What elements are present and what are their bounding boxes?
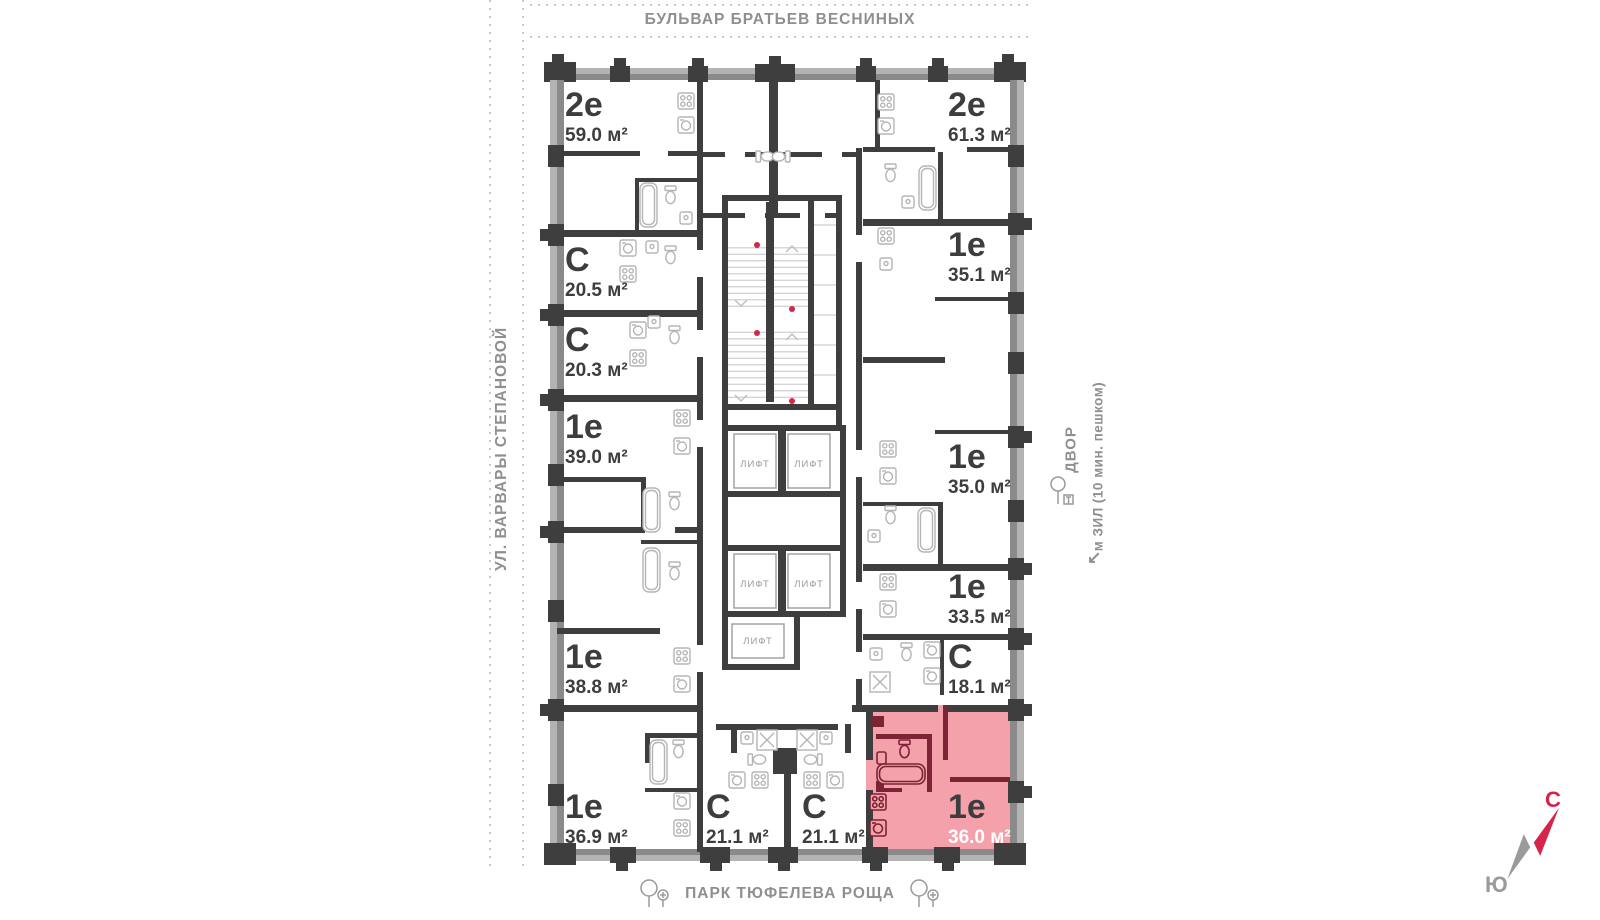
apartment-type: С	[565, 323, 628, 357]
apartment-1e-390[interactable]: 1е 39.0 м²	[565, 410, 628, 467]
apartment-area: 21.1 м²	[706, 828, 769, 847]
apartment-type: 1е	[948, 228, 1011, 262]
elevator-label: ЛИФТ	[734, 459, 776, 470]
apartment-area: 33.5 м²	[948, 608, 1011, 627]
apartment-1e-351[interactable]: 1е 35.1 м²	[948, 228, 1011, 285]
apartment-s-203[interactable]: С 20.3 м²	[565, 323, 628, 380]
apartment-area: 18.1 м²	[948, 678, 1011, 697]
apartment-1e-350[interactable]: 1е 35.0 м²	[948, 440, 1011, 497]
apartment-area: 20.3 м²	[565, 361, 628, 380]
apartment-type: 2е	[565, 88, 628, 122]
apartment-2e-59[interactable]: 2е 59.0 м²	[565, 88, 628, 145]
apartment-area: 59.0 м²	[565, 126, 628, 145]
apartment-s-211-right[interactable]: С 21.1 м²	[802, 790, 865, 847]
apartment-area: 61.3 м²	[948, 126, 1011, 145]
apartment-area: 35.0 м²	[948, 478, 1011, 497]
apartment-area: 35.1 м²	[948, 266, 1011, 285]
elevator-label: ЛИФТ	[788, 459, 830, 470]
floorplan-page: БУЛЬВАР БРАТЬЕВ ВЕСНИНЫХ УЛ. ВАРВАРЫ СТЕ…	[0, 0, 1600, 920]
apartment-type: 1е	[948, 440, 1011, 474]
apartment-area: 20.5 м²	[565, 281, 628, 300]
apartment-type: С	[948, 640, 1011, 674]
apartment-area: 36.9 м²	[565, 828, 628, 847]
apartment-type: 1е	[948, 570, 1011, 604]
apartment-area: 39.0 м²	[565, 448, 628, 467]
elevator-label: ЛИФТ	[788, 579, 830, 590]
apartment-s-181[interactable]: С 18.1 м²	[948, 640, 1011, 697]
elevator-label: ЛИФТ	[732, 636, 784, 647]
apartment-type: 1е	[565, 790, 628, 824]
apartment-area: 21.1 м²	[802, 828, 865, 847]
apartment-type: С	[565, 243, 628, 277]
apartment-type: 1е	[565, 640, 628, 674]
stairwell	[728, 202, 836, 404]
apartment-s-211-left[interactable]: С 21.1 м²	[706, 790, 769, 847]
apartment-1e-369[interactable]: 1е 36.9 м²	[565, 790, 628, 847]
apartment-1e-360-highlighted[interactable]: 1е 36.0 м²	[948, 790, 1011, 847]
apartment-type: С	[802, 790, 865, 824]
apartment-s-205[interactable]: С 20.5 м²	[565, 243, 628, 300]
apartment-area: 38.8 м²	[565, 678, 628, 697]
apartment-2e-613[interactable]: 2е 61.3 м²	[948, 88, 1011, 145]
apartment-type: 2е	[948, 88, 1011, 122]
apartment-type: 1е	[565, 410, 628, 444]
elevator-label: ЛИФТ	[734, 579, 776, 590]
apartment-area: 36.0 м²	[948, 828, 1011, 847]
apartment-type: 1е	[948, 790, 1011, 824]
apartment-1e-335[interactable]: 1е 33.5 м²	[948, 570, 1011, 627]
apartment-1e-388[interactable]: 1е 38.8 м²	[565, 640, 628, 697]
apartment-type: С	[706, 790, 769, 824]
